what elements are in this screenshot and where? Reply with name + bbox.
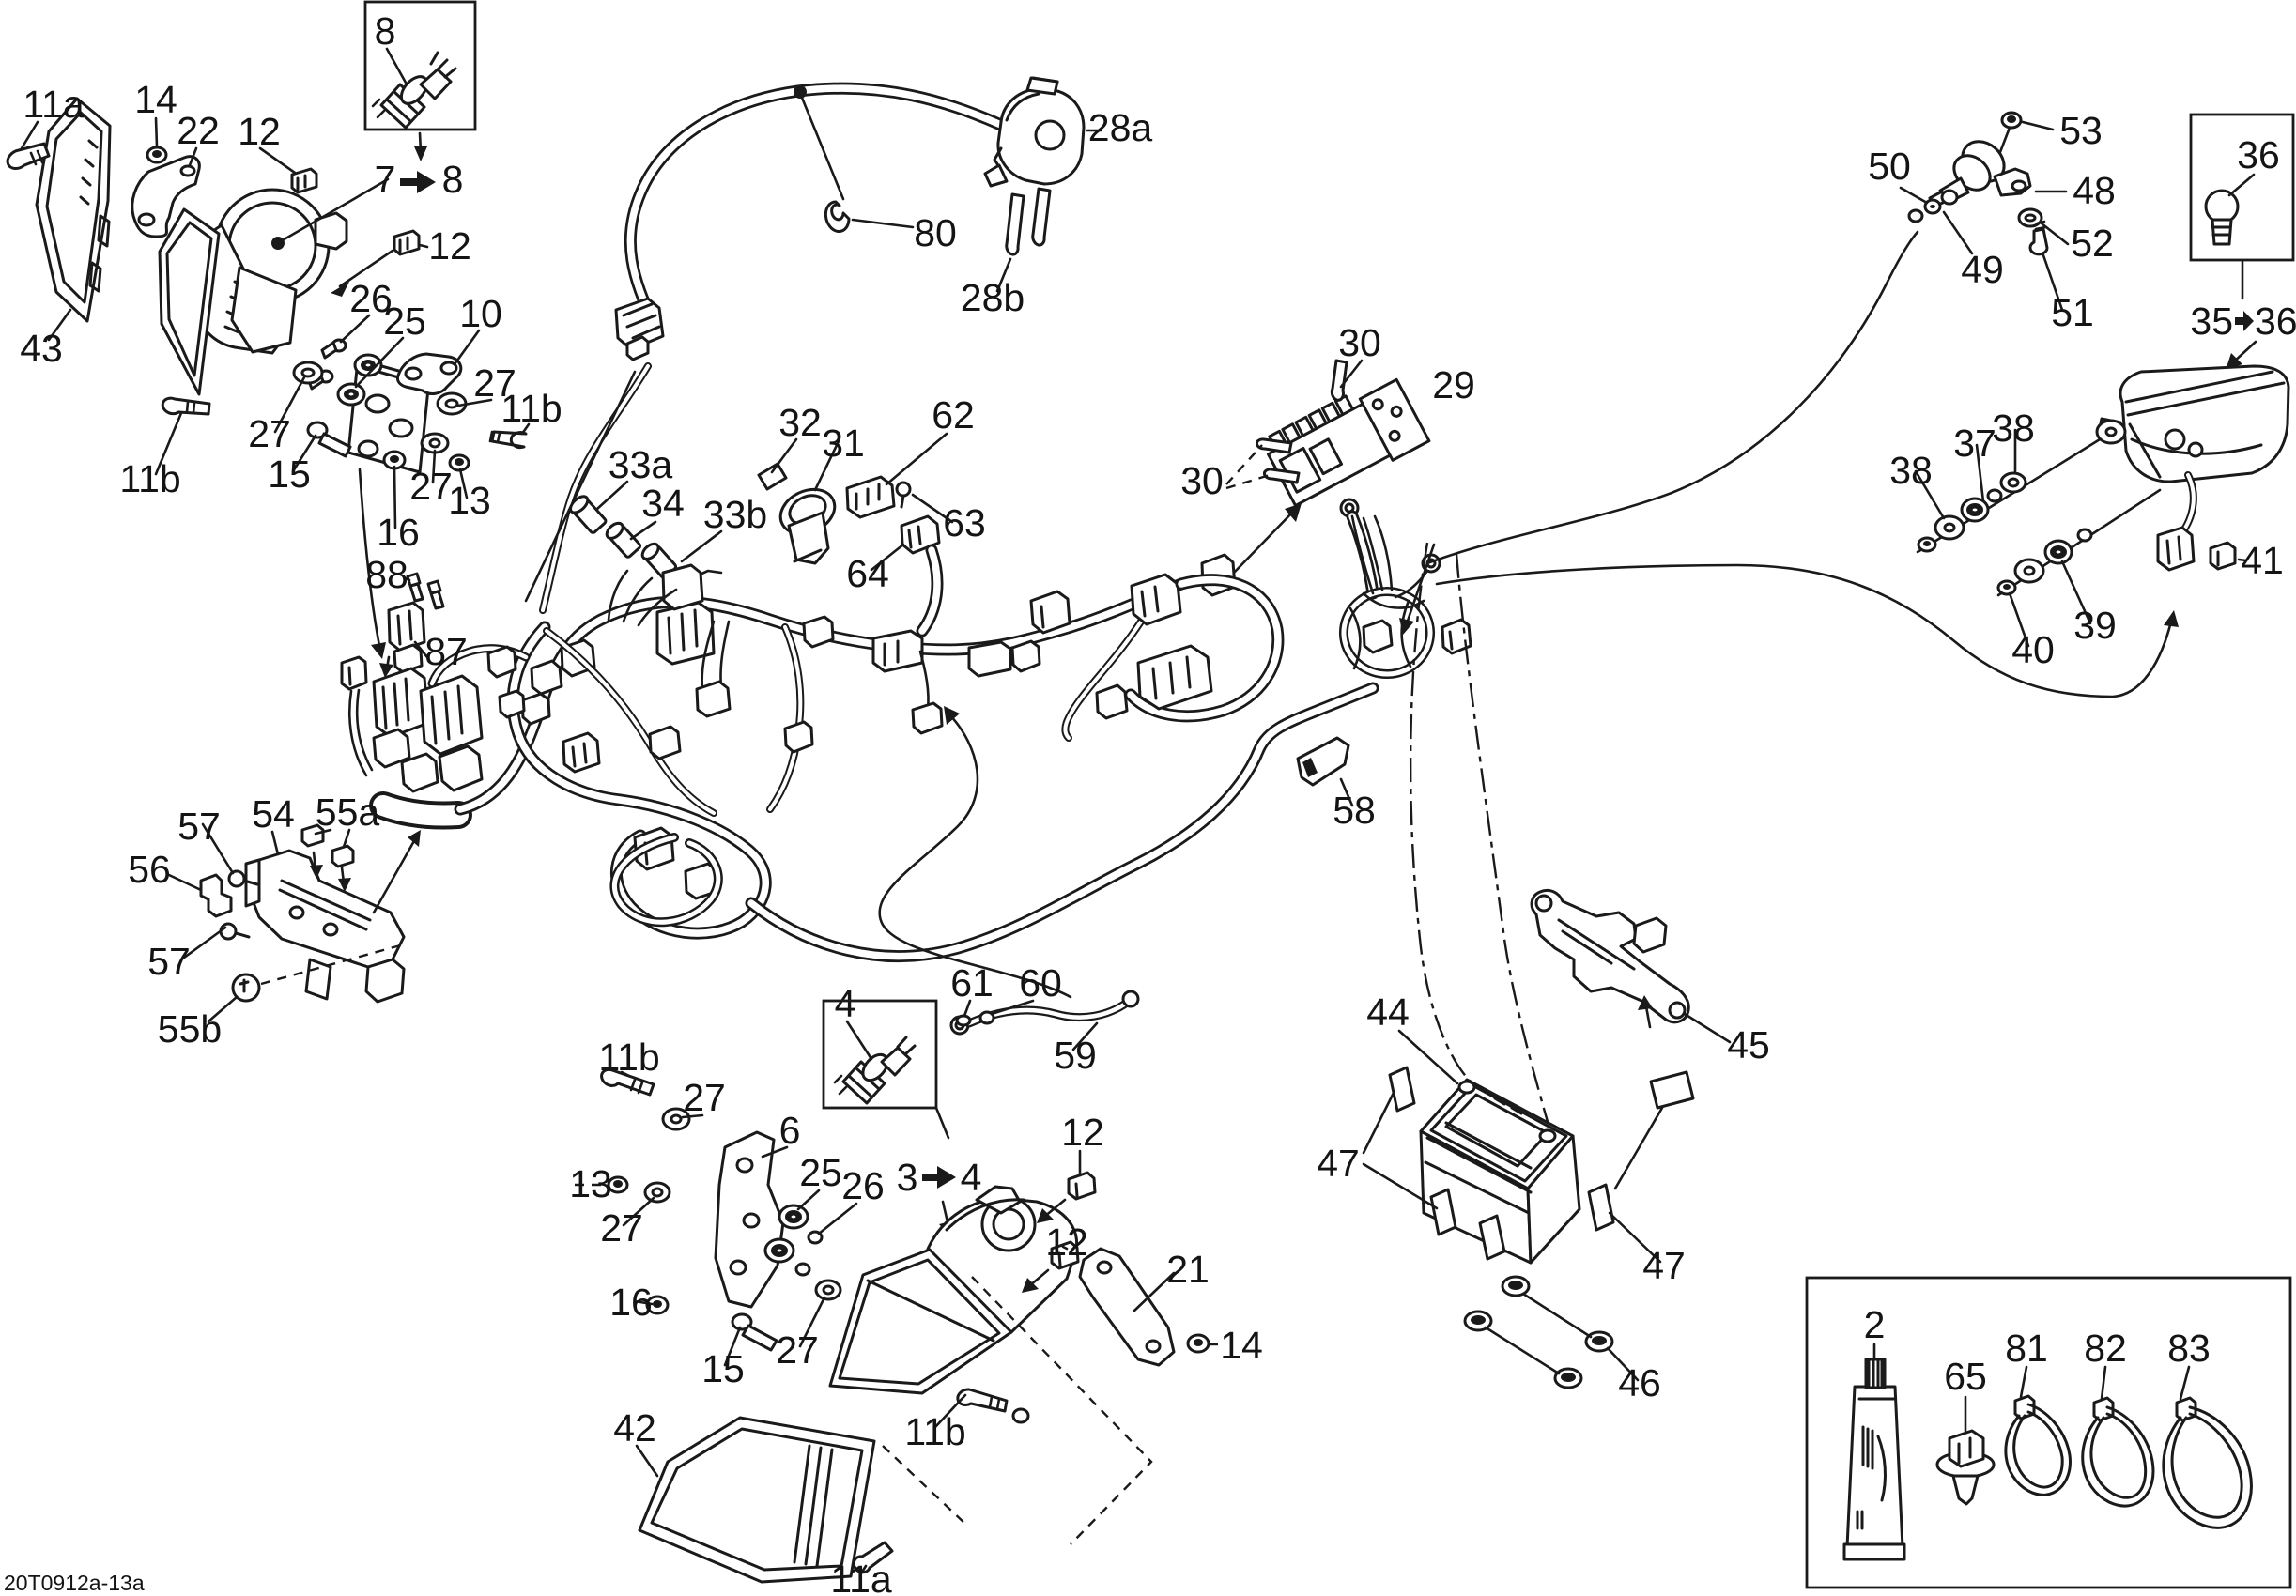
svg-text:11b: 11b	[904, 1410, 965, 1453]
svg-text:64: 64	[846, 552, 889, 595]
svg-text:36: 36	[2255, 299, 2296, 343]
svg-text:27: 27	[683, 1076, 726, 1119]
svg-text:16: 16	[609, 1281, 653, 1324]
svg-text:61: 61	[950, 961, 994, 1005]
svg-text:51: 51	[2051, 291, 2094, 334]
svg-text:47: 47	[1317, 1142, 1360, 1185]
svg-text:31: 31	[822, 422, 865, 465]
svg-text:34: 34	[641, 482, 685, 525]
svg-text:36: 36	[2237, 133, 2280, 176]
svg-text:2: 2	[1864, 1303, 1886, 1346]
svg-text:52: 52	[2071, 222, 2114, 265]
svg-text:8: 8	[442, 158, 464, 201]
svg-text:26: 26	[841, 1164, 885, 1207]
svg-text:80: 80	[914, 211, 957, 254]
svg-text:43: 43	[20, 327, 63, 370]
svg-text:55b: 55b	[158, 1007, 222, 1051]
svg-text:35: 35	[2190, 299, 2233, 343]
svg-text:20T0912a-13a: 20T0912a-13a	[4, 1571, 145, 1595]
svg-text:82: 82	[2084, 1327, 2127, 1370]
svg-text:11b: 11b	[598, 1036, 659, 1079]
svg-text:22: 22	[177, 109, 220, 152]
svg-text:3: 3	[897, 1156, 918, 1199]
svg-text:50: 50	[1868, 145, 1911, 188]
svg-text:56: 56	[128, 848, 171, 891]
svg-text:37: 37	[1953, 422, 1996, 465]
svg-text:42: 42	[613, 1406, 656, 1450]
svg-text:15: 15	[268, 453, 311, 496]
svg-text:63: 63	[943, 501, 986, 545]
svg-text:4: 4	[835, 982, 856, 1025]
svg-text:33a: 33a	[609, 443, 673, 486]
svg-text:27: 27	[776, 1328, 819, 1372]
svg-text:58: 58	[1333, 789, 1376, 832]
svg-text:14: 14	[1220, 1324, 1263, 1367]
svg-text:46: 46	[1618, 1361, 1661, 1404]
svg-text:16: 16	[377, 511, 420, 554]
svg-text:55a: 55a	[316, 790, 380, 834]
svg-text:45: 45	[1727, 1023, 1770, 1067]
svg-text:65: 65	[1944, 1355, 1987, 1398]
svg-text:41: 41	[2241, 539, 2284, 582]
svg-text:8: 8	[375, 9, 396, 53]
svg-text:54: 54	[252, 792, 295, 836]
svg-text:25: 25	[799, 1151, 842, 1194]
svg-text:11b: 11b	[501, 387, 562, 430]
svg-text:28a: 28a	[1088, 106, 1153, 149]
svg-text:15: 15	[701, 1347, 745, 1390]
svg-text:25: 25	[383, 299, 426, 343]
svg-text:12: 12	[1061, 1111, 1104, 1154]
svg-text:33b: 33b	[703, 493, 767, 536]
svg-text:57: 57	[147, 940, 191, 983]
svg-text:27: 27	[600, 1206, 643, 1250]
svg-text:14: 14	[134, 78, 177, 121]
svg-text:11a: 11a	[830, 1558, 892, 1596]
svg-text:11b: 11b	[119, 457, 180, 500]
svg-text:11a: 11a	[23, 83, 85, 126]
svg-text:12: 12	[428, 224, 471, 268]
svg-text:27: 27	[248, 412, 291, 455]
svg-text:48: 48	[2073, 169, 2116, 212]
svg-text:81: 81	[2005, 1327, 2048, 1370]
svg-text:6: 6	[779, 1109, 801, 1152]
svg-text:21: 21	[1166, 1248, 1210, 1291]
svg-text:44: 44	[1366, 990, 1410, 1034]
svg-text:12: 12	[238, 110, 281, 153]
svg-text:7: 7	[375, 158, 396, 201]
svg-text:30: 30	[1180, 459, 1224, 502]
svg-text:13: 13	[448, 479, 491, 522]
svg-text:47: 47	[1642, 1244, 1686, 1287]
svg-text:49: 49	[1961, 248, 2004, 291]
svg-text:38: 38	[1992, 407, 2035, 450]
svg-text:4: 4	[961, 1156, 982, 1199]
svg-text:39: 39	[2073, 604, 2117, 647]
svg-text:29: 29	[1432, 363, 1475, 407]
svg-text:60: 60	[1019, 961, 1062, 1005]
svg-text:32: 32	[778, 401, 822, 444]
svg-text:87: 87	[424, 630, 468, 673]
svg-text:59: 59	[1054, 1034, 1097, 1077]
svg-text:27: 27	[409, 465, 453, 508]
svg-text:12: 12	[1045, 1220, 1088, 1264]
svg-text:13: 13	[569, 1162, 612, 1205]
svg-text:40: 40	[2011, 628, 2055, 671]
svg-text:38: 38	[1889, 449, 1933, 492]
svg-text:88: 88	[365, 553, 408, 596]
svg-text:83: 83	[2167, 1327, 2211, 1370]
svg-text:62: 62	[932, 393, 975, 437]
svg-text:10: 10	[459, 292, 502, 335]
svg-text:53: 53	[2059, 109, 2103, 152]
svg-text:30: 30	[1338, 321, 1381, 364]
svg-text:28b: 28b	[961, 276, 1025, 319]
svg-text:57: 57	[177, 805, 221, 848]
